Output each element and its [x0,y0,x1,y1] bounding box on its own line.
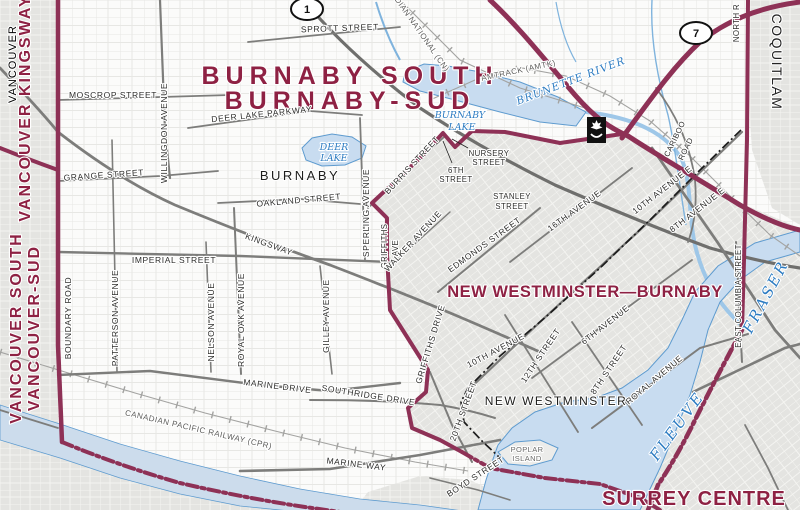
label-poplar-island-2: ISLAND [512,454,542,463]
district-label-surrey-centre: SURREY CENTRE [602,488,786,510]
street-label-6th-st-nw-2: STREET [439,175,472,184]
map-canvas: 1 7 BURNABY SOUTH BURNABY-SUD NEW WESTMI… [0,0,800,510]
street-label-stanley-2: STREET [495,202,528,211]
city-label-coquitlam: COQUITLAM [769,14,785,111]
street-label-moscrop: MOSCROP STREET [69,90,157,100]
street-label-east-columbia: EAST COLUMBIA STREET [734,244,743,348]
street-label-gilley: GILLEY AVENUE [321,279,331,353]
highway-1-number: 1 [304,4,310,16]
district-label-vancouver-south-fr: VANCOUVER-SUD [26,245,43,411]
water-label-deer-lake-1: DEER [319,142,349,153]
street-label-nursery-2: STREET [472,158,505,167]
street-label-sperling: SPERLING AVENUE [361,169,371,257]
highway-7-number: 7 [693,28,699,40]
water-label-burnaby-lake-2: LAKE [447,122,475,133]
city-label-vancouver: VANCOUVER [7,25,19,103]
street-label-6th-st-nw-1: 6TH [448,166,464,175]
federal-institution-icon [587,117,606,143]
district-label-vancouver-kingsway: VANCOUVER KINGSWAY [17,0,34,222]
electoral-district-map: 1 7 BURNABY SOUTH BURNABY-SUD NEW WESTMI… [0,0,800,510]
district-label-new-westminster-burnaby: NEW WESTMINSTER—BURNABY [447,283,723,301]
street-label-nursery-1: NURSERY [469,149,510,158]
street-label-patterson: PATTERSON AVENUE [110,270,120,367]
city-label-new-westminster: NEW WESTMINSTER [485,394,628,408]
street-label-boundary: BOUNDARY ROAD [63,277,73,360]
street-label-willingdon: WILLINGDON AVENUE [159,83,169,183]
city-label-burnaby: BURNABY [260,168,340,183]
street-label-royal-oak: ROYAL OAK AVENUE [236,273,246,367]
highway-7-shield: 7 [680,22,712,44]
street-label-north-road: NORTH R [732,4,741,42]
district-label-vancouver-south-en: VANCOUVER SOUTH [8,232,25,424]
water-label-burnaby-lake-1: BURNABY [434,110,487,121]
street-label-stanley-1: STANLEY [493,192,531,201]
label-poplar-island-1: POPLAR [511,445,544,454]
street-label-imperial: IMPERIAL STREET [132,255,216,265]
street-label-nelson: NELSON AVENUE [206,283,216,362]
water-label-deer-lake-2: LAKE [319,153,347,164]
highway-1-shield: 1 [291,0,323,20]
district-title-line1: BURNABY SOUTH [202,62,499,90]
